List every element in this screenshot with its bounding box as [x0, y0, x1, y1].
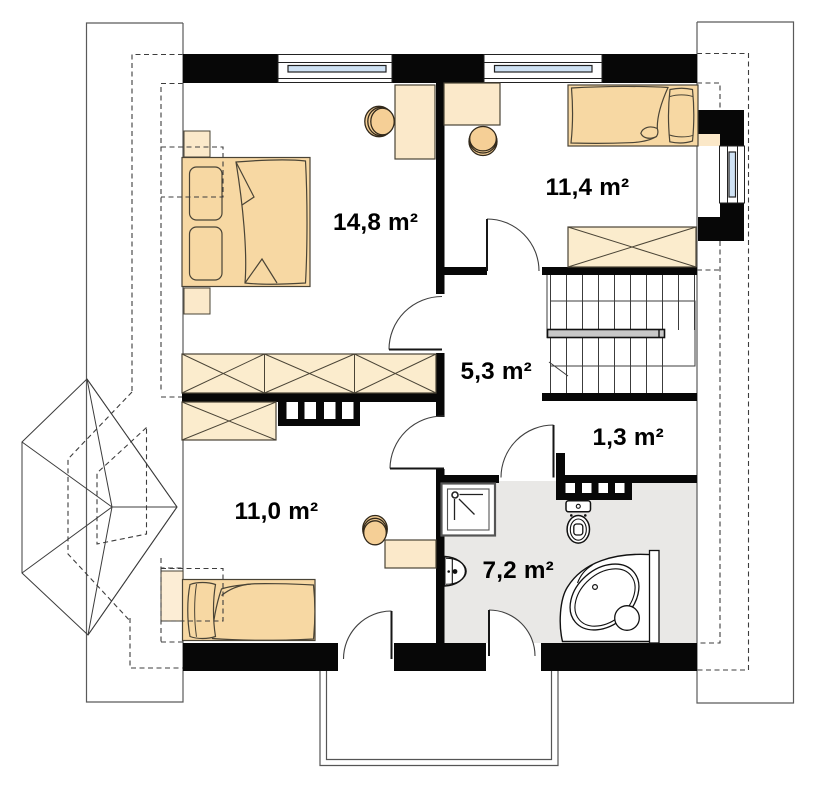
svg-text:1,3 m²: 1,3 m² [593, 424, 664, 451]
svg-text:11,0 m²: 11,0 m² [235, 498, 319, 525]
svg-text:7,2 m²: 7,2 m² [483, 557, 554, 584]
svg-text:5,3 m²: 5,3 m² [461, 358, 532, 385]
svg-text:11,4 m²: 11,4 m² [546, 174, 630, 201]
svg-text:14,8 m²: 14,8 m² [333, 209, 418, 236]
